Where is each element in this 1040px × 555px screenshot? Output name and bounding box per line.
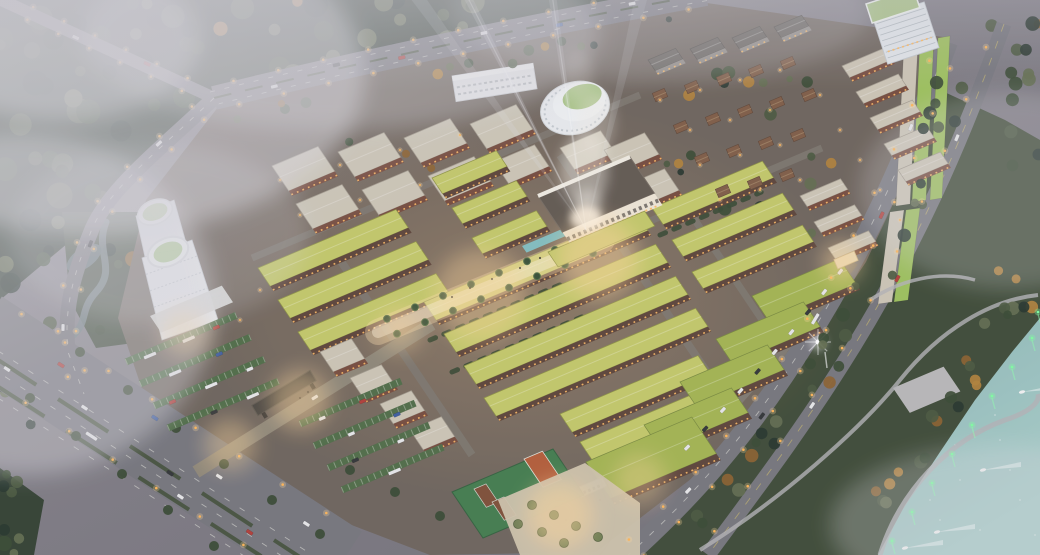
dusk-veil: [0, 0, 1040, 555]
atmosphere-layer: [0, 0, 1040, 555]
architectural-rendering-canvas: [0, 0, 1040, 555]
aerial-rendering: [0, 0, 1040, 555]
